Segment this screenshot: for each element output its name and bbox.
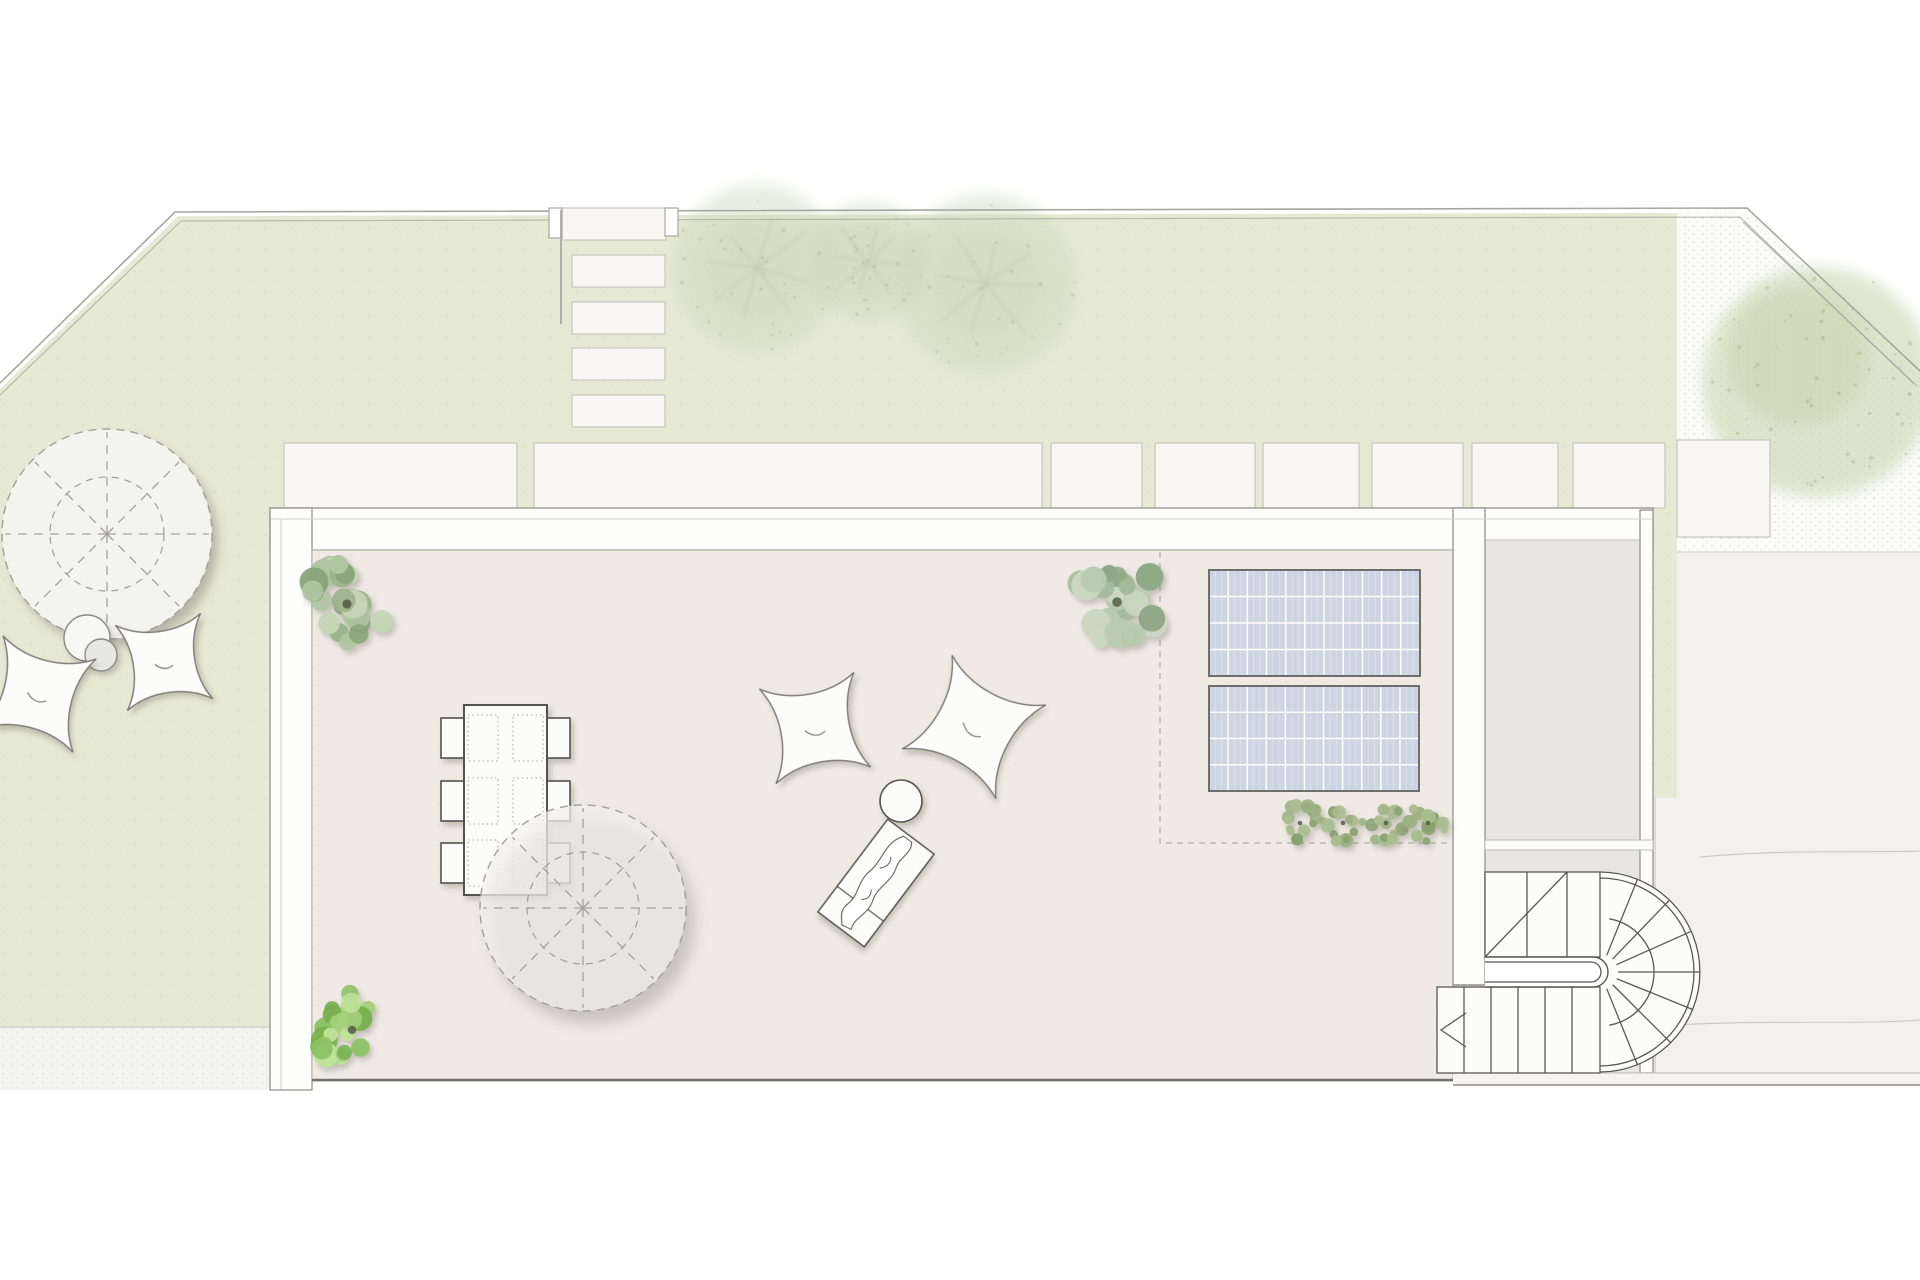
speckle — [1711, 380, 1715, 384]
speckle — [852, 281, 855, 284]
speckle — [1868, 411, 1872, 415]
speckle — [1784, 320, 1786, 322]
foliage — [1404, 815, 1417, 828]
speckle — [1031, 335, 1034, 338]
speckle — [1737, 346, 1741, 350]
tree — [895, 194, 1076, 374]
speckle — [1794, 420, 1797, 423]
foliage — [1411, 830, 1424, 843]
speckle — [895, 215, 897, 217]
speckle — [855, 313, 859, 317]
plant-core — [1341, 821, 1346, 826]
speckle — [972, 337, 974, 339]
speckle — [851, 276, 854, 279]
speckle — [1071, 293, 1075, 297]
foliage — [1387, 812, 1395, 820]
concrete-paver — [1573, 443, 1665, 508]
dining-chair — [441, 781, 464, 821]
speckle — [1896, 412, 1900, 416]
speckle — [895, 283, 897, 285]
speckle — [1026, 245, 1030, 249]
foliage — [1343, 835, 1351, 843]
foliage — [1080, 567, 1106, 593]
speckle — [771, 334, 774, 337]
plant-core — [1384, 821, 1389, 826]
speckle — [756, 200, 758, 202]
site-plan-drawing — [0, 0, 1920, 1280]
speckle — [1821, 476, 1824, 479]
speckle — [723, 248, 726, 251]
speckle — [1000, 353, 1002, 355]
speckle — [1886, 378, 1888, 380]
speckle — [866, 307, 869, 310]
foliage — [1437, 817, 1450, 830]
speckle — [973, 261, 975, 263]
concrete-paver — [1677, 440, 1770, 537]
plant-core — [348, 1026, 356, 1034]
speckle — [872, 265, 876, 269]
speckle — [1826, 304, 1828, 306]
foliage — [1409, 804, 1418, 813]
speckle — [854, 245, 857, 248]
speckle — [817, 251, 821, 255]
speckle — [1775, 347, 1777, 349]
foliage — [332, 589, 356, 613]
foliage — [311, 1038, 332, 1059]
speckle — [876, 257, 878, 259]
speckle — [1736, 432, 1739, 435]
speckle — [849, 237, 853, 241]
speckle — [762, 273, 764, 275]
gate-post — [665, 208, 678, 236]
speckle — [699, 238, 702, 241]
speckle — [1804, 337, 1807, 340]
foliage — [329, 555, 348, 574]
foliage — [1309, 804, 1321, 816]
speckle — [1815, 376, 1819, 380]
speckle — [998, 317, 1001, 320]
speckle — [1006, 346, 1008, 348]
speckle — [1910, 422, 1912, 424]
foliage — [1119, 579, 1135, 595]
speckle — [863, 299, 866, 302]
speckle — [1756, 383, 1759, 386]
speckle — [793, 296, 796, 299]
entry-step — [572, 302, 665, 334]
speckle — [779, 330, 782, 333]
speckle — [1718, 338, 1721, 341]
speckle — [1821, 336, 1825, 340]
speckle — [893, 307, 895, 309]
speckle — [1727, 388, 1731, 392]
speckle — [719, 334, 722, 337]
dividing-wall — [1453, 508, 1485, 985]
speckle — [1074, 281, 1076, 283]
speckle — [713, 223, 716, 226]
gravel-strip-texture — [0, 1027, 270, 1090]
speckle — [948, 361, 951, 364]
speckle — [761, 257, 764, 260]
speckle — [1868, 368, 1871, 371]
foliage — [1423, 837, 1431, 845]
speckle — [866, 244, 869, 247]
foliage — [318, 613, 340, 635]
foliage — [341, 993, 361, 1013]
speckle — [1821, 309, 1825, 313]
foliage — [302, 580, 323, 601]
parapet-wall-top — [270, 508, 1653, 550]
speckle — [1009, 270, 1013, 274]
foliage — [1139, 605, 1166, 632]
upper-flight-fill — [1485, 872, 1600, 957]
speckle — [771, 348, 774, 351]
speckle — [759, 287, 763, 291]
foliage — [1291, 833, 1303, 845]
speckle — [1894, 354, 1896, 356]
speckle — [1806, 482, 1809, 485]
speckle — [866, 227, 868, 229]
foliage — [1345, 815, 1354, 824]
speckle — [866, 298, 869, 301]
annex-cross-beam — [1485, 840, 1653, 850]
speckle — [1857, 424, 1859, 426]
driveway-surface — [1677, 552, 1920, 1085]
speckle — [1905, 452, 1908, 455]
speckle — [854, 250, 857, 253]
speckle — [927, 285, 931, 289]
foliage — [1104, 618, 1135, 649]
speckle — [1854, 383, 1857, 386]
speckle — [902, 298, 906, 302]
speckle — [786, 293, 788, 295]
speckle — [1753, 366, 1756, 369]
foliage — [1289, 799, 1303, 813]
speckle — [990, 204, 993, 207]
plant-core — [342, 599, 351, 608]
speckle — [853, 267, 856, 270]
stair-bottom-band — [1453, 1073, 1920, 1085]
lawn-parasol — [2, 429, 212, 639]
speckle — [1812, 277, 1816, 281]
foliage — [349, 624, 369, 644]
speckle — [1837, 391, 1841, 395]
concrete-paver — [1155, 443, 1255, 508]
foliage — [1287, 827, 1295, 835]
foliage — [1358, 818, 1366, 826]
dining-chair — [441, 843, 464, 883]
speckle — [730, 293, 733, 296]
foliage — [370, 610, 393, 633]
speckle — [1820, 320, 1823, 323]
speckle — [962, 285, 965, 288]
speckle — [1810, 483, 1813, 486]
speckle — [1756, 363, 1760, 367]
foliage — [1136, 563, 1164, 591]
dining-chair — [441, 718, 464, 758]
speckle — [1060, 306, 1062, 308]
speckle — [1789, 314, 1792, 317]
speckle — [1765, 286, 1769, 290]
speckle — [782, 229, 786, 233]
speckle — [888, 279, 890, 281]
speckle — [1908, 341, 1912, 345]
speckle — [1011, 320, 1015, 324]
speckle — [906, 223, 909, 226]
foliage — [1350, 828, 1359, 837]
speckle — [680, 281, 683, 284]
speckle — [1038, 282, 1042, 286]
speckle — [855, 247, 858, 250]
foliage — [1374, 815, 1384, 825]
speckle — [1857, 365, 1859, 367]
site-plan-canvas — [0, 0, 1920, 1280]
concrete-paver — [534, 443, 1042, 508]
foliage — [1309, 820, 1317, 828]
plant-core — [1112, 597, 1122, 607]
solar-panel — [1209, 686, 1419, 791]
foliage — [1331, 835, 1342, 846]
speckle — [869, 277, 872, 280]
speckle — [1809, 398, 1811, 400]
speckle — [1907, 392, 1912, 397]
foliage — [1284, 816, 1292, 824]
dining-chair — [547, 718, 570, 758]
speckle — [995, 241, 998, 244]
speckle — [822, 308, 825, 311]
speckle — [790, 334, 792, 336]
speckle — [1872, 281, 1875, 284]
speckle — [1769, 427, 1773, 431]
speckle — [1866, 327, 1869, 330]
speckle — [719, 239, 722, 242]
speckle — [772, 322, 775, 325]
foliage — [1332, 805, 1346, 819]
speckle — [783, 282, 786, 285]
plant-core — [1298, 821, 1303, 826]
entry-step — [572, 255, 665, 287]
foliage — [1386, 833, 1397, 844]
speckle — [681, 228, 685, 232]
speckle — [1868, 465, 1871, 468]
entry-step — [572, 395, 665, 427]
foliage — [337, 1045, 352, 1060]
speckle — [1869, 456, 1873, 460]
speckle — [1745, 418, 1747, 420]
concrete-paver — [1472, 443, 1558, 508]
speckle — [696, 306, 699, 309]
entry-step — [562, 208, 666, 240]
speckle — [1813, 479, 1817, 483]
concrete-paver — [1263, 443, 1359, 508]
plant-core — [1426, 821, 1431, 826]
tree-canopy-core — [1729, 288, 1867, 426]
speckle — [826, 286, 829, 289]
speckle — [885, 284, 888, 287]
foliage — [1378, 804, 1389, 815]
speckle — [928, 235, 930, 237]
speckle — [1059, 323, 1062, 326]
concrete-paver — [1372, 443, 1463, 508]
speckle — [975, 342, 979, 346]
speckle — [975, 354, 977, 356]
speckle — [853, 235, 856, 238]
concrete-paver — [1051, 443, 1142, 508]
foliage — [1394, 807, 1403, 816]
speckle — [739, 248, 742, 251]
speckle — [1805, 399, 1809, 403]
solar-panel — [1209, 570, 1420, 676]
speckle — [862, 262, 865, 265]
speckle — [936, 350, 939, 353]
speckle — [1851, 460, 1855, 464]
concrete-paver — [284, 443, 517, 508]
foliage — [351, 1038, 370, 1057]
speckle — [1892, 377, 1895, 380]
foliage — [324, 1001, 339, 1016]
speckle — [1901, 422, 1904, 425]
speckle — [683, 257, 687, 261]
speckle — [1857, 351, 1861, 355]
speckle — [708, 320, 711, 323]
speckle — [911, 249, 914, 252]
speckle — [980, 287, 983, 290]
speckle — [1733, 318, 1735, 320]
speckle — [1809, 404, 1813, 408]
entry-step — [572, 348, 665, 380]
speckle — [1846, 452, 1850, 456]
speckle — [766, 260, 768, 262]
speckle — [947, 275, 949, 277]
speckle — [715, 291, 717, 293]
coffee-table — [880, 780, 922, 822]
speckle — [947, 338, 949, 340]
